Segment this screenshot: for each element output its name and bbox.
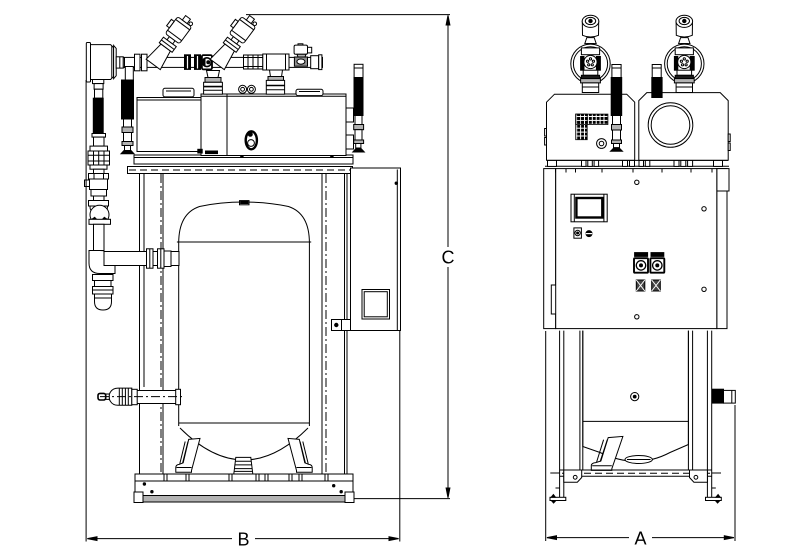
svg-text:A: A (634, 529, 646, 549)
svg-text:C: C (442, 248, 455, 268)
svg-text:B: B (237, 530, 249, 550)
